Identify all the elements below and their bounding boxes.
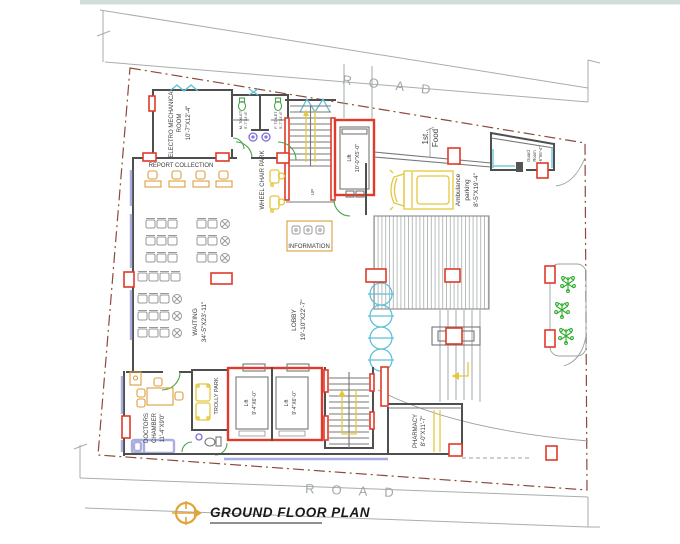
label-f-toilet-dims: 5'-7"X4'-6": [279, 111, 283, 129]
label-m-toilet-dims: 5'-7"X4'-6": [244, 111, 248, 129]
label-waiting: WAITING: [192, 308, 199, 336]
north-arrow-icon: [172, 501, 202, 525]
tree-icon: [555, 303, 570, 319]
tree-icon: [561, 277, 576, 293]
stairs-bottom: [324, 368, 374, 448]
driveway: [378, 310, 588, 458]
label-pharmacy-dims: 8'-0"X11'-7": [421, 416, 427, 447]
road-label-bottom: ROAD: [305, 481, 411, 501]
label-lift-b2: Lift: [284, 399, 290, 406]
label-ambulance-dims: 8'-5"X19'-4": [473, 172, 480, 207]
label-waiting-dims: 34'-5"X23'-11": [201, 301, 208, 342]
room-toilets: M. TOILET 5'-7"X4'-6" F. TOILET 5'-7"X4'…: [232, 89, 288, 158]
ground-floor-plan-drawing: ROAD ELECTRO MECHANICAL ROOM 10'-7"X12'-…: [0, 0, 680, 544]
report-collection: REPORT COLLECTION: [145, 163, 232, 187]
label-trolly-park: TROLLY PARK: [214, 377, 220, 414]
label-lobby-dims: 19'-10"X22'-7": [300, 299, 307, 341]
room-electro-mechanical: ELECTRO MECHANICAL ROOM 10'-7"X12'-4": [153, 85, 244, 158]
label-f-toilet: F. TOILET: [274, 111, 278, 129]
label-lift-top-dims: 10'-0"X5'-0": [355, 144, 361, 173]
label-lobby: LOBBY: [291, 309, 298, 331]
tree-icon: [559, 329, 574, 345]
label-wheel-chair-park: WHEEL CHAIR PARK: [260, 150, 266, 209]
label-lift-b2-dims: 9'-4"X6'-0": [292, 391, 298, 414]
trolley-icons: [196, 384, 210, 420]
label-electro-dims: 10'-7"X12'-4": [186, 106, 192, 141]
ambulance-parking: Ambulance parking 8'-5"X19'-4": [366, 164, 480, 214]
page-title: GROUND FLOOR PLAN: [210, 505, 370, 520]
label-ambulance-2: parking: [464, 179, 471, 201]
label-food-1: 1st.: [421, 132, 430, 145]
label-doctors-2: CHAMBER: [152, 412, 158, 443]
label-guard-1: Guard: [526, 150, 531, 162]
label-information: INFORMATION: [288, 244, 330, 250]
doctor-desk: [130, 372, 183, 407]
label-lift-top: Lift: [347, 154, 353, 162]
wheelchair-icon: [270, 170, 285, 186]
title-block: GROUND FLOOR PLAN: [172, 501, 370, 525]
lifts-bottom: Lift 9'-4"X6'-0" Lift 9'-4"X6'-0": [228, 364, 322, 440]
report-desks: [145, 171, 232, 187]
wc-fixtures: [182, 434, 227, 455]
doctors-chamber: DOCTORS CHAMBER 11'-4"X9'0": [122, 370, 192, 455]
label-guard-2: Room: [532, 150, 537, 162]
label-doctors-1: DOCTORS: [144, 413, 150, 443]
stairs-top: UP: [285, 99, 335, 202]
label-report-collection: REPORT COLLECTION: [149, 163, 214, 169]
label-lift-b1-dims: 9'-4"X6'-0": [252, 391, 258, 414]
label-ambulance-1: Ambulance: [455, 173, 462, 206]
south-wall: [124, 454, 462, 459]
label-food-2: Food: [431, 129, 440, 147]
label-m-toilet: M. TOILET: [239, 110, 243, 129]
ramp-hatch: [374, 216, 489, 309]
label-pharmacy: PHARMACY: [413, 414, 419, 448]
trolly-park: TROLLY PARK: [182, 370, 227, 455]
ambulance-icon: [390, 170, 453, 210]
ramp-arrow-icon: [452, 372, 459, 380]
lobby: LOBBY 19'-10"X22'-7": [291, 299, 307, 341]
floor-plan-canvas: ROAD ELECTRO MECHANICAL ROOM 10'-7"X12'-…: [0, 0, 680, 544]
label-electro-1: ELECTRO MECHANICAL: [169, 88, 175, 158]
label-stairs-up: UP: [310, 189, 315, 195]
label-lift-b1: Lift: [244, 399, 250, 406]
corridor-canopy: 1st. Food: [374, 127, 491, 167]
basin-icons: [249, 133, 270, 141]
top-edge-band: [80, 0, 680, 5]
label-doctors-dims: 11'-4"X9'0": [160, 414, 166, 443]
road-label-top: ROAD: [342, 72, 449, 99]
wheelchair-icon: [270, 196, 285, 212]
label-electro-2: ROOM: [177, 114, 183, 133]
